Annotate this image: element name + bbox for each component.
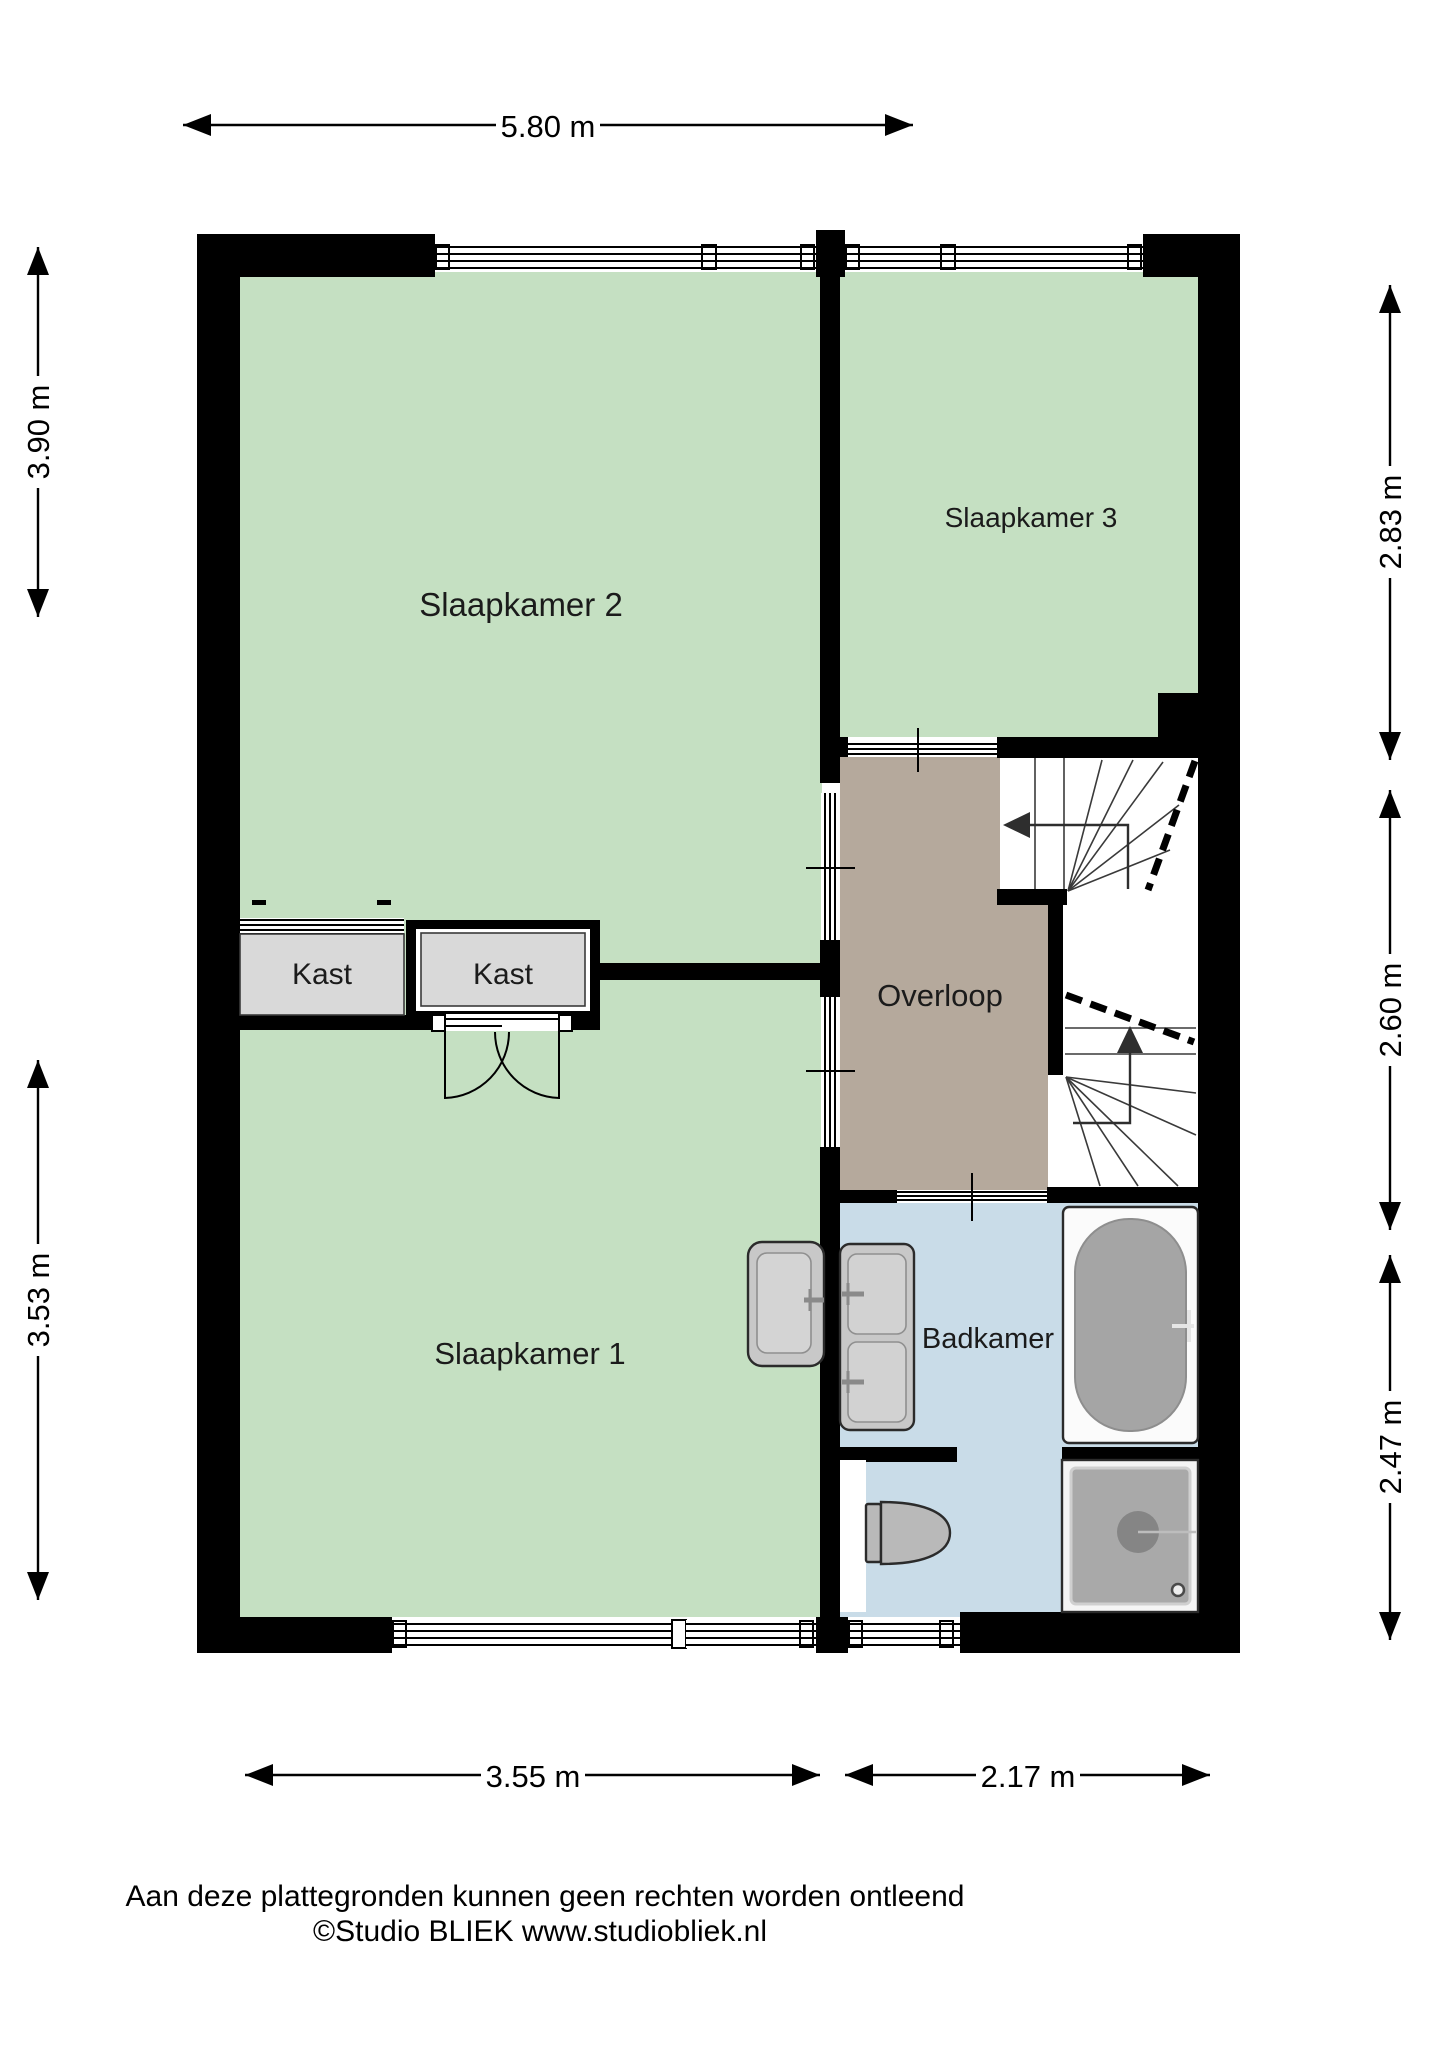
floorplan-svg: Slaapkamer 2 Slaapkamer 3 Slaapkamer 1 O… bbox=[0, 0, 1447, 2048]
wall-s3-corner-notch bbox=[1158, 693, 1198, 741]
window-slaapkamer2-top bbox=[435, 244, 816, 270]
dimension-right-upper: 2.83 m bbox=[1368, 285, 1412, 760]
toilet-niche bbox=[840, 1460, 866, 1612]
wall-bottom-right bbox=[960, 1612, 1240, 1653]
wall-overloop-stair bbox=[1048, 905, 1063, 1075]
bathtub-icon bbox=[1063, 1207, 1198, 1443]
dimension-label-left-upper: 3.90 m bbox=[21, 385, 56, 480]
label-slaapkamer3: Slaapkamer 3 bbox=[945, 502, 1118, 533]
wall-stair-mid bbox=[997, 889, 1067, 905]
dimension-label-bottom-left: 3.55 m bbox=[486, 1759, 581, 1794]
window-slaapkamer1-bottom-long bbox=[392, 1620, 672, 1648]
window-mullion bbox=[672, 1620, 686, 1648]
wall-badkamer-top-left bbox=[840, 1190, 897, 1203]
shower-icon bbox=[1062, 1460, 1198, 1612]
footer: Aan deze plattegronden kunnen geen recht… bbox=[126, 1880, 965, 1948]
dimension-left-lower: 3.53 m bbox=[16, 1060, 60, 1600]
dash-mark bbox=[252, 900, 266, 905]
wall-stair-badkamer bbox=[1063, 1187, 1198, 1203]
label-slaapkamer2: Slaapkamer 2 bbox=[419, 586, 623, 623]
window-badkamer-bottom bbox=[848, 1620, 960, 1648]
wall-center-s2-s3 bbox=[820, 234, 840, 783]
sink-icon bbox=[748, 1242, 824, 1366]
dimension-left-upper: 3.90 m bbox=[16, 247, 60, 617]
dimension-right-lower: 2.47 m bbox=[1368, 1255, 1412, 1640]
dimension-top: 5.80 m bbox=[183, 103, 913, 147]
footer-credit: ©Studio BLIEK www.studiobliek.nl bbox=[313, 1915, 767, 1948]
dimension-bottom-right: 2.17 m bbox=[845, 1753, 1210, 1797]
label-kast-right: Kast bbox=[473, 958, 534, 991]
wall-bottom-left bbox=[197, 1617, 392, 1653]
dimension-label-left-lower: 3.53 m bbox=[21, 1253, 56, 1348]
dimension-bottom-left: 3.55 m bbox=[245, 1753, 820, 1797]
wall-right-exterior bbox=[1198, 234, 1240, 1653]
windows-bottom bbox=[392, 1620, 960, 1648]
windows-top bbox=[435, 244, 1143, 270]
wall-top-right bbox=[1143, 234, 1240, 277]
wall-center-s1-badkamer bbox=[820, 1147, 840, 1617]
window-slaapkamer1-bottom-short bbox=[686, 1620, 816, 1648]
wall-toilet-stub bbox=[838, 1447, 957, 1462]
double-sink-icon bbox=[840, 1244, 914, 1430]
footer-disclaimer: Aan deze plattegronden kunnen geen recht… bbox=[126, 1880, 965, 1913]
dimension-right-middle: 2.60 m bbox=[1368, 790, 1412, 1230]
partition-s2-overloop bbox=[821, 793, 839, 940]
label-badkamer: Badkamer bbox=[922, 1323, 1055, 1355]
wall-left-exterior bbox=[197, 234, 240, 1653]
partition-s3-overloop bbox=[848, 740, 997, 757]
sliding-door-icon bbox=[240, 918, 404, 934]
dimension-label-right-upper: 2.83 m bbox=[1373, 475, 1408, 570]
wall-kast-bottom bbox=[197, 1015, 406, 1030]
dimension-label-bottom-right: 2.17 m bbox=[981, 1759, 1076, 1794]
wall-center-solid-1 bbox=[820, 940, 840, 997]
label-kast-left: Kast bbox=[292, 958, 353, 991]
wall-s3-bottom-left-stub bbox=[820, 737, 848, 757]
wall-top-left bbox=[197, 234, 435, 277]
dimension-label-right-middle: 2.60 m bbox=[1373, 963, 1408, 1058]
label-slaapkamer1: Slaapkamer 1 bbox=[434, 1336, 625, 1371]
label-overloop: Overloop bbox=[877, 978, 1003, 1013]
floorplan-page: Slaapkamer 2 Slaapkamer 3 Slaapkamer 1 O… bbox=[0, 0, 1447, 2048]
dimension-label-top: 5.80 m bbox=[501, 109, 596, 144]
dimension-label-right-lower: 2.47 m bbox=[1373, 1400, 1408, 1495]
wall-s2-s1 bbox=[600, 963, 822, 980]
window-slaapkamer3-top bbox=[845, 244, 1143, 270]
wall-bottom-center-pier bbox=[816, 1617, 848, 1653]
dash-mark bbox=[377, 900, 391, 905]
wall-badkamer-top-pier bbox=[1047, 1187, 1063, 1203]
